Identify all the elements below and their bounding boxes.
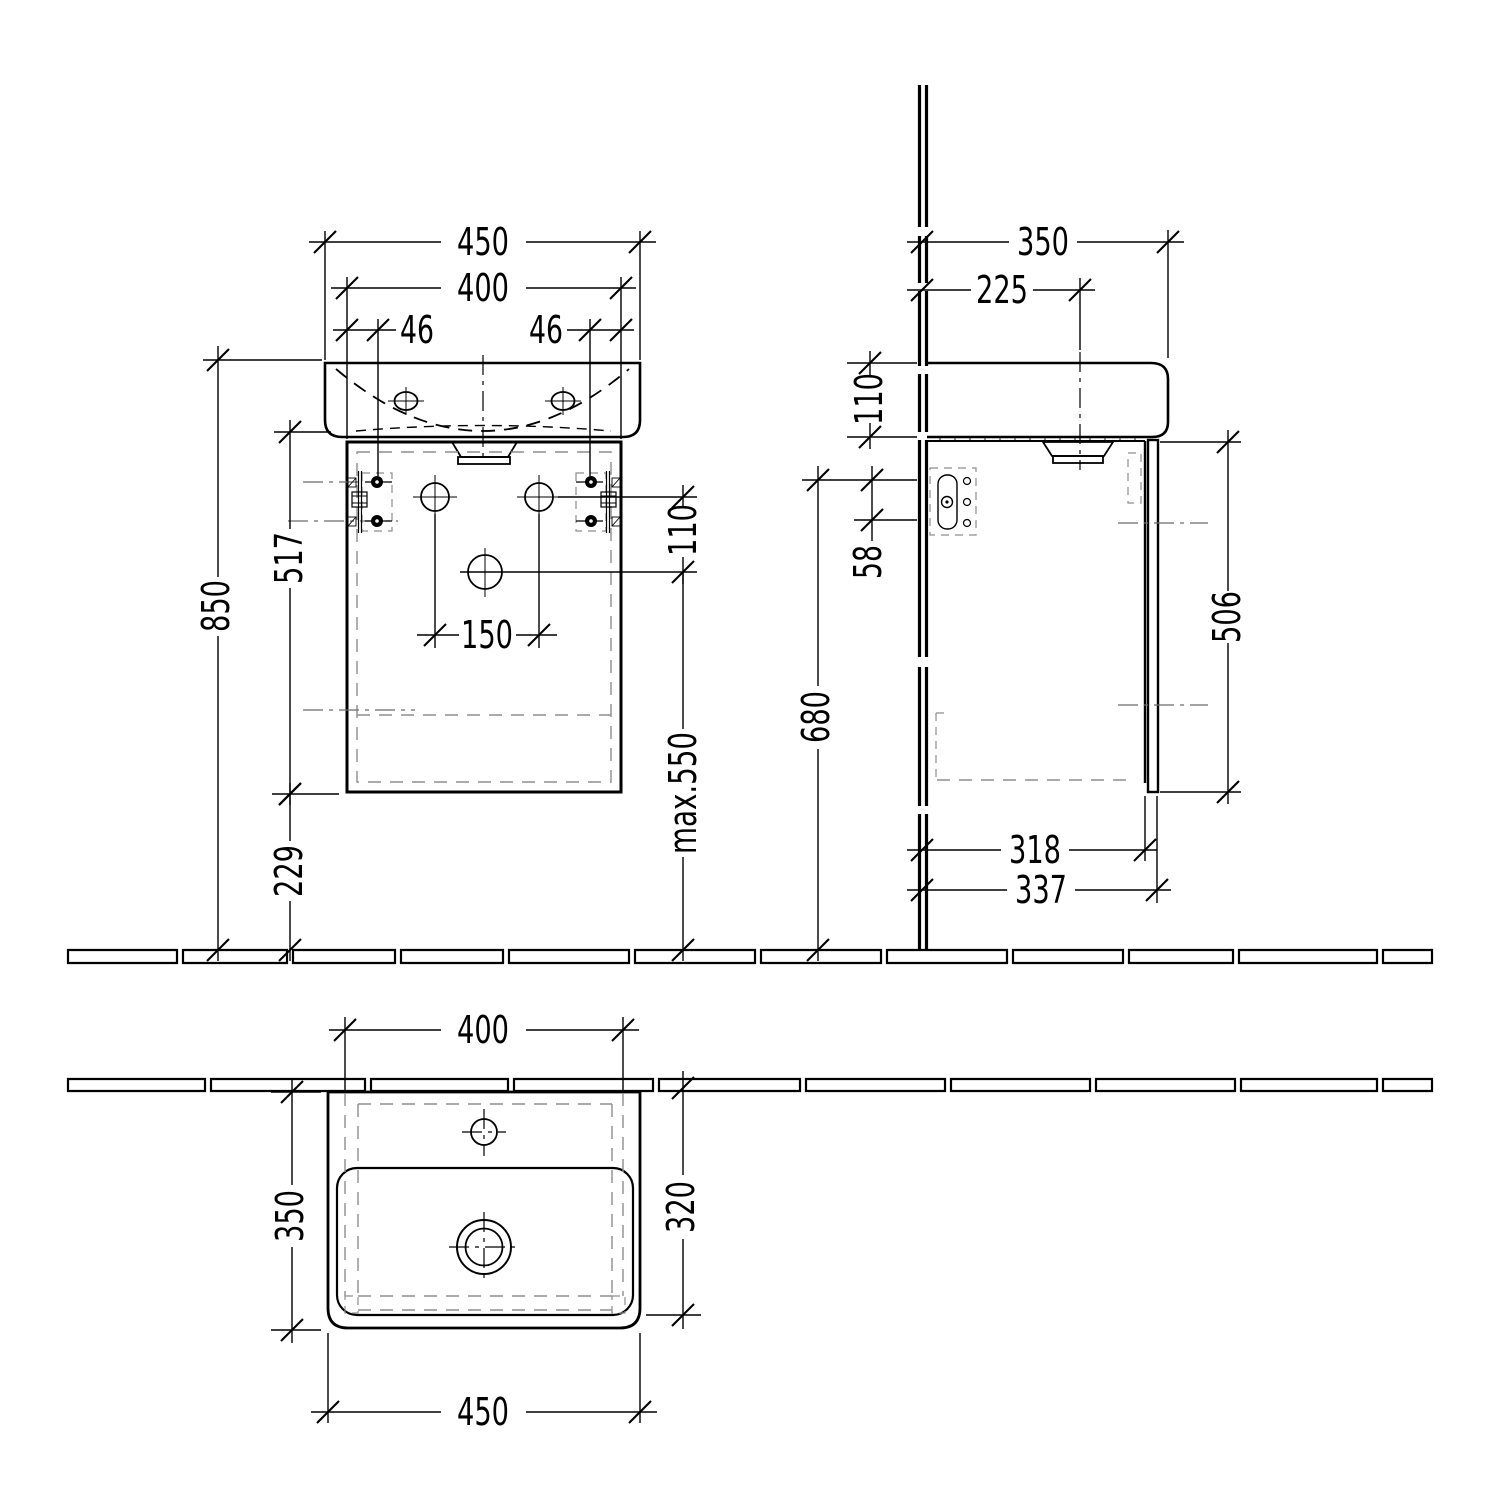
drain-fitting xyxy=(452,442,517,464)
dim-label-overall-depth: 337 xyxy=(1015,868,1067,912)
front-view xyxy=(288,355,640,792)
drain-trap-side xyxy=(1043,352,1113,470)
dim-front-trap-max: max.550 xyxy=(661,572,705,961)
dim-label-basin-depth: 350 xyxy=(1017,220,1069,264)
dim-label-bracket-height: 680 xyxy=(794,691,838,743)
washbasin-side-profile xyxy=(927,363,1168,437)
wall-tile-line xyxy=(68,1079,1432,1091)
cabinet-side-body xyxy=(928,438,1145,783)
dim-label-cabinet-height: 517 xyxy=(267,532,311,584)
tap-hole-top xyxy=(462,1109,506,1156)
dim-label-bracket-offset-left: 46 xyxy=(400,308,434,352)
top-view xyxy=(328,1092,640,1328)
dim-front-drain-offset: 110 xyxy=(460,485,705,584)
dim-side-bracket-holes-spacing: 58 xyxy=(802,466,917,579)
dim-front-tap-holes-spacing: 150 xyxy=(417,514,557,657)
door-handle-hidden xyxy=(1128,453,1141,503)
dim-label-door-height: 506 xyxy=(1205,591,1249,643)
dim-label-trap-max: max.550 xyxy=(661,732,705,854)
dim-top-bowl-front-depth: 320 xyxy=(646,1071,703,1329)
dim-label-drain-from-wall: 225 xyxy=(976,268,1028,312)
mounting-bracket-right xyxy=(576,471,620,533)
side-view xyxy=(920,85,1209,950)
dim-label-top-basin-width: 450 xyxy=(457,1390,509,1434)
door-side-panel xyxy=(1148,440,1158,792)
dim-label-floor-clearance: 229 xyxy=(267,845,311,897)
drawing-canvas: 450 400 46 46 850 517 229 150 110 xyxy=(0,0,1500,1500)
dim-label-top-basin-depth: 350 xyxy=(268,1190,312,1242)
dim-side-basin-depth: 350 xyxy=(907,220,1184,358)
drain-top xyxy=(449,1212,519,1282)
dim-label-top-cabinet-width: 400 xyxy=(457,1008,509,1052)
dim-label-drain-offset: 110 xyxy=(661,504,705,556)
technical-drawing-page: 450 400 46 46 850 517 229 150 110 xyxy=(0,0,1500,1500)
wall-line xyxy=(920,85,927,950)
dim-front-floor-clearance: 229 xyxy=(267,783,339,961)
dim-label-bracket-holes-spacing: 58 xyxy=(846,545,890,579)
cabinet-hidden-outline-top xyxy=(345,1093,625,1313)
overflow-hole-right xyxy=(545,387,581,415)
dim-label-total-height: 850 xyxy=(194,580,238,632)
hinge-axis-lines xyxy=(288,482,415,710)
dim-side-drain-from-wall: 225 xyxy=(907,268,1095,350)
dim-label-tap-holes-spacing: 150 xyxy=(461,613,513,657)
wall-bracket-side xyxy=(930,468,976,535)
dim-front-cabinet-height: 517 xyxy=(267,420,331,805)
hinge-axis-lines-side xyxy=(1118,523,1208,705)
dim-side-body-depth: 318 xyxy=(907,796,1157,872)
dim-side-door-height: 506 xyxy=(1160,430,1249,804)
mounting-bracket-left xyxy=(348,471,392,533)
overflow-hole-left xyxy=(388,387,424,415)
bowl-top-outline xyxy=(337,1168,633,1315)
dim-label-top-bowl-front-depth: 320 xyxy=(659,1181,703,1233)
tap-hole-left xyxy=(413,475,457,519)
dim-top-basin-width: 450 xyxy=(311,1333,657,1434)
floor-line xyxy=(68,950,1432,963)
dim-side-basin-height: 110 xyxy=(847,351,917,449)
dim-label-front-basin-width: 450 xyxy=(457,220,509,264)
dim-front-bracket-offset-right: 46 xyxy=(529,308,634,476)
dim-top-basin-depth: 350 xyxy=(268,1079,321,1343)
dim-label-front-cabinet-width: 400 xyxy=(457,266,509,310)
dim-label-body-depth: 318 xyxy=(1009,828,1061,872)
dim-label-bracket-offset-right: 46 xyxy=(529,308,563,352)
tap-hole-right xyxy=(517,475,561,519)
dim-side-bracket-height: 680 xyxy=(794,466,838,961)
dim-label-basin-height: 110 xyxy=(847,373,891,425)
